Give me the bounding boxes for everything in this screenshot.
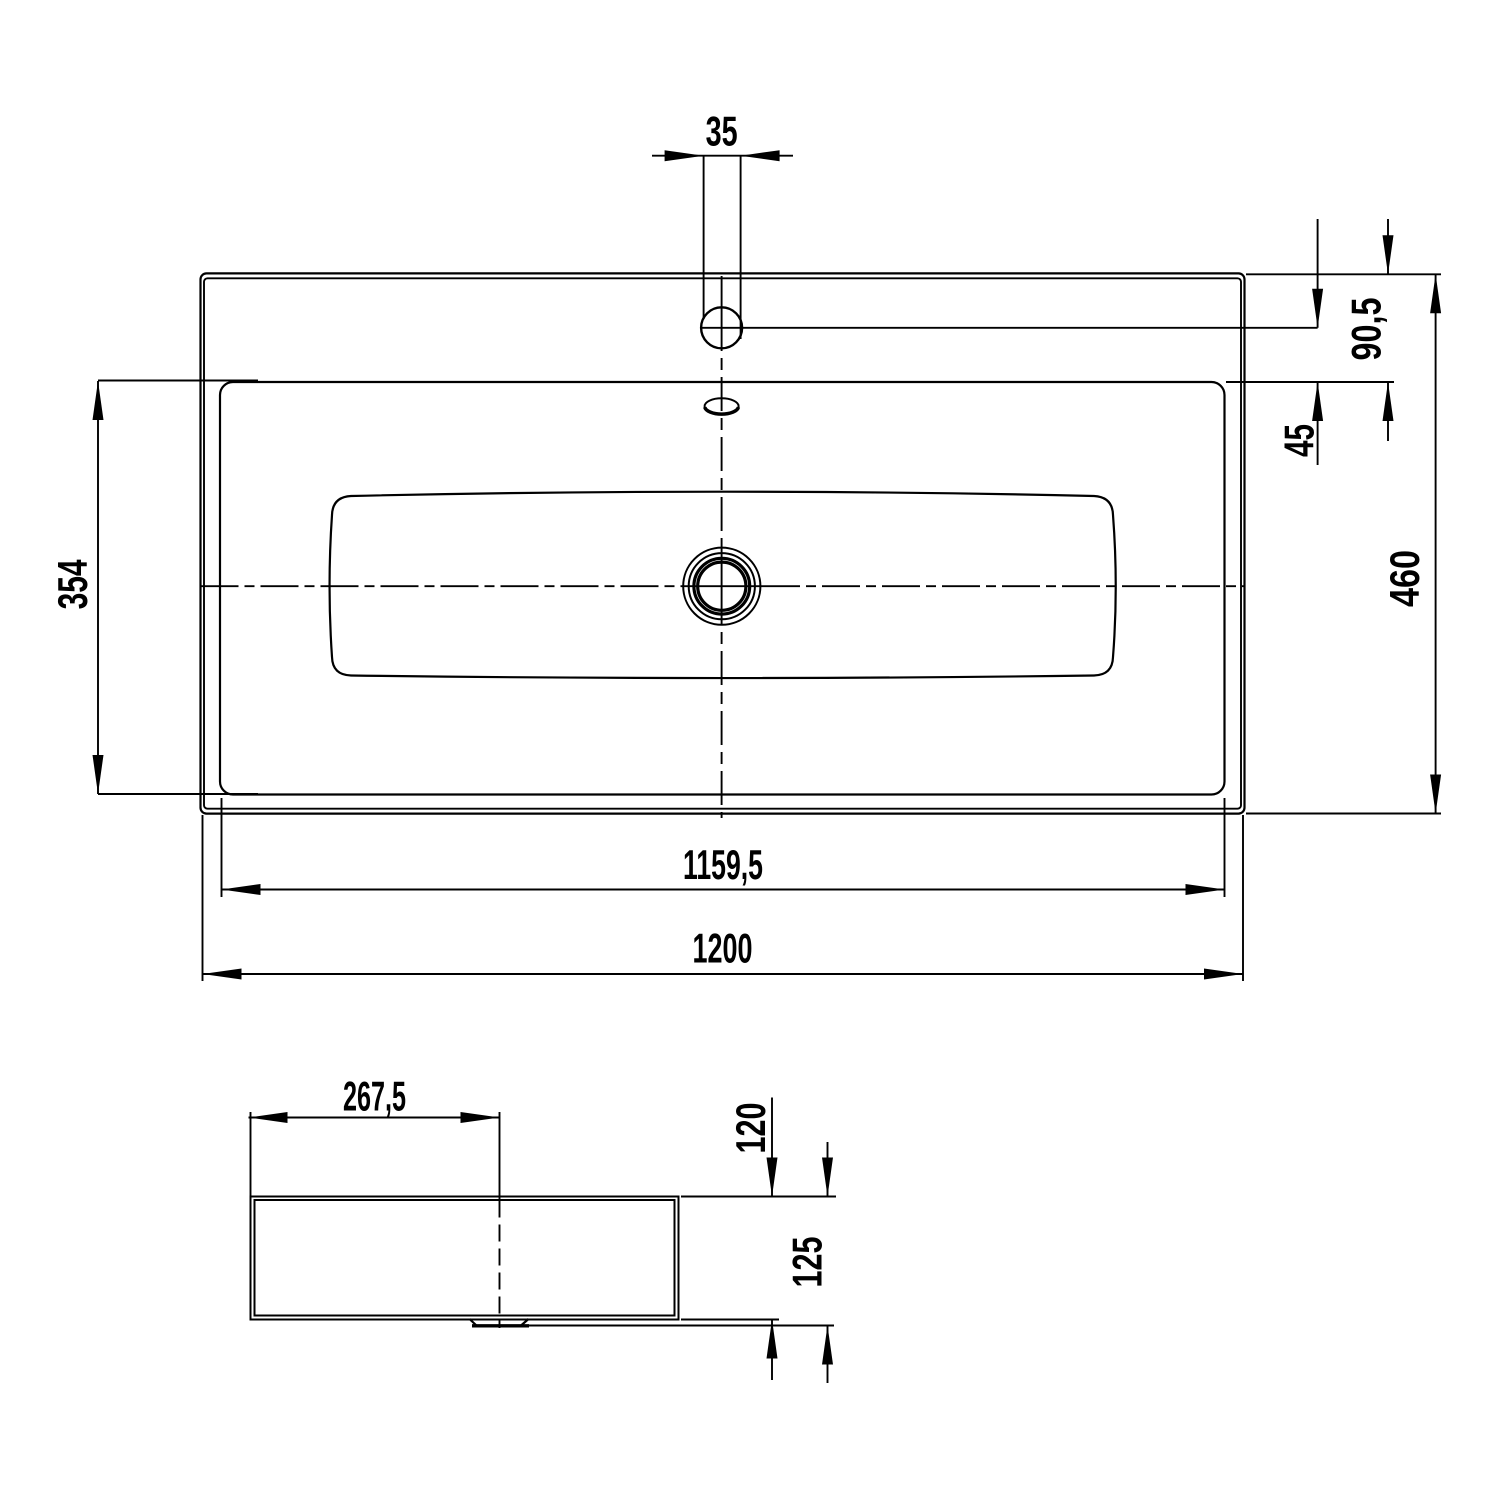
- svg-text:354: 354: [49, 559, 96, 609]
- svg-text:1200: 1200: [693, 925, 753, 972]
- svg-text:1159,5: 1159,5: [683, 841, 763, 888]
- svg-text:125: 125: [784, 1237, 831, 1288]
- svg-text:120: 120: [727, 1103, 774, 1154]
- svg-text:460: 460: [1381, 550, 1428, 607]
- svg-text:90,5: 90,5: [1343, 298, 1390, 361]
- svg-text:267,5: 267,5: [343, 1073, 406, 1120]
- svg-text:45: 45: [1276, 424, 1323, 457]
- svg-text:35: 35: [706, 108, 738, 155]
